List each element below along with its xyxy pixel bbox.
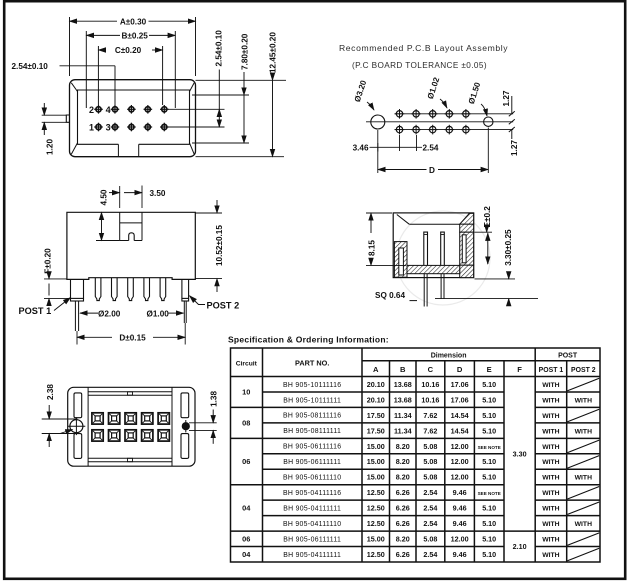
svg-text:F: F — [517, 365, 522, 374]
svg-text:SQ 0.64: SQ 0.64 — [375, 291, 405, 300]
svg-text:12.00: 12.00 — [451, 442, 469, 451]
svg-text:15.00: 15.00 — [367, 442, 385, 451]
svg-text:2.10: 2.10 — [513, 542, 527, 551]
svg-text:5.10: 5.10 — [482, 519, 496, 528]
svg-text:(P.C BOARD TOLERANCE ±0.05): (P.C BOARD TOLERANCE ±0.05) — [352, 61, 487, 70]
svg-text:E: E — [487, 365, 492, 374]
svg-text:D: D — [457, 365, 463, 374]
svg-text:17.50: 17.50 — [367, 411, 385, 420]
svg-text:BH 905-06111111: BH 905-06111111 — [283, 459, 341, 466]
svg-text:6.26: 6.26 — [396, 504, 410, 513]
svg-text:3.50: 3.50 — [150, 189, 166, 198]
svg-text:Recommended P.C.B Layout Assem: Recommended P.C.B Layout Assembly — [339, 43, 508, 53]
svg-text:2.54: 2.54 — [423, 504, 437, 513]
svg-text:10.16: 10.16 — [421, 380, 439, 389]
svg-text:A: A — [373, 365, 379, 374]
svg-text:WITH: WITH — [542, 506, 559, 513]
svg-text:13.68: 13.68 — [394, 380, 412, 389]
svg-text:06: 06 — [242, 535, 250, 544]
svg-text:Ø1.00: Ø1.00 — [147, 310, 170, 319]
svg-text:9.46: 9.46 — [453, 488, 467, 497]
svg-text:2: 2 — [89, 105, 94, 115]
svg-text:12.50: 12.50 — [367, 504, 385, 513]
svg-text:15.00: 15.00 — [367, 535, 385, 544]
svg-text:5.08: 5.08 — [423, 473, 437, 482]
svg-text:WITH: WITH — [575, 521, 592, 528]
svg-text:B±0.25: B±0.25 — [122, 32, 149, 41]
svg-text:6.26: 6.26 — [396, 488, 410, 497]
svg-text:17.06: 17.06 — [451, 395, 469, 404]
svg-text:WITH: WITH — [542, 397, 559, 404]
svg-text:1.38: 1.38 — [210, 391, 219, 407]
svg-text:12.50: 12.50 — [367, 488, 385, 497]
svg-text:SEE NOTE: SEE NOTE — [478, 491, 501, 496]
svg-text:5.10: 5.10 — [482, 504, 496, 513]
svg-text:4.50: 4.50 — [100, 189, 109, 205]
svg-text:WITH: WITH — [542, 521, 559, 528]
svg-text:5.10: 5.10 — [482, 535, 496, 544]
svg-text:WITH: WITH — [542, 459, 559, 466]
svg-text:4: 4 — [106, 105, 111, 115]
svg-text:1.27: 1.27 — [510, 140, 519, 156]
svg-text:2.38: 2.38 — [46, 384, 55, 400]
svg-text:BH 905-08111111: BH 905-08111111 — [283, 428, 341, 435]
svg-text:POST 2: POST 2 — [207, 301, 240, 311]
svg-text:10.52±0.15: 10.52±0.15 — [215, 225, 224, 266]
svg-text:12.00: 12.00 — [451, 535, 469, 544]
svg-text:7.80±0.20: 7.80±0.20 — [241, 33, 250, 70]
svg-text:WITH: WITH — [542, 490, 559, 497]
svg-text:WITH: WITH — [575, 397, 592, 404]
svg-text:6.26: 6.26 — [396, 519, 410, 528]
svg-text:BH 905-04111111: BH 905-04111111 — [283, 506, 341, 513]
svg-text:5.10: 5.10 — [482, 411, 496, 420]
svg-text:6.26: 6.26 — [396, 550, 410, 559]
svg-text:10: 10 — [242, 388, 250, 397]
svg-text:POST 1: POST 1 — [539, 367, 564, 374]
svg-text:5.10: 5.10 — [482, 426, 496, 435]
svg-text:3: 3 — [106, 123, 111, 133]
svg-text:1.27: 1.27 — [502, 90, 511, 106]
svg-text:B: B — [400, 365, 406, 374]
svg-text:5.10: 5.10 — [482, 380, 496, 389]
svg-text:WITH: WITH — [575, 428, 592, 435]
svg-text:12.45±0.20: 12.45±0.20 — [269, 32, 278, 73]
svg-text:08: 08 — [242, 419, 250, 428]
svg-text:5.08: 5.08 — [423, 457, 437, 466]
svg-text:D±0.15: D±0.15 — [119, 334, 146, 343]
svg-text:D: D — [429, 166, 435, 175]
svg-text:BH 905-10111116: BH 905-10111116 — [283, 382, 341, 389]
svg-text:BH 905-04111116: BH 905-04111116 — [283, 490, 341, 497]
svg-text:WITH: WITH — [542, 413, 559, 420]
svg-text:2.54: 2.54 — [423, 519, 437, 528]
svg-text:12.50: 12.50 — [367, 519, 385, 528]
svg-text:BH 905-10111111: BH 905-10111111 — [283, 397, 341, 404]
svg-text:9.46: 9.46 — [453, 519, 467, 528]
svg-text:F±0.20: F±0.20 — [44, 248, 53, 274]
svg-text:8.20: 8.20 — [396, 457, 410, 466]
svg-text:15.00: 15.00 — [367, 457, 385, 466]
svg-text:POST 1: POST 1 — [19, 306, 52, 316]
svg-text:WITH: WITH — [575, 475, 592, 482]
svg-text:WITH: WITH — [542, 382, 559, 389]
svg-text:11.34: 11.34 — [394, 426, 412, 435]
svg-text:9.46: 9.46 — [453, 550, 467, 559]
svg-text:04: 04 — [242, 550, 251, 559]
svg-text:8.20: 8.20 — [396, 473, 410, 482]
svg-text:5.10: 5.10 — [482, 395, 496, 404]
svg-text:14.54: 14.54 — [451, 426, 469, 435]
svg-text:SEE NOTE: SEE NOTE — [478, 445, 501, 450]
svg-text:12.00: 12.00 — [451, 473, 469, 482]
svg-text:15.00: 15.00 — [367, 473, 385, 482]
svg-text:WITH: WITH — [542, 552, 559, 559]
svg-text:Ø2.00: Ø2.00 — [98, 310, 121, 319]
svg-text:5.08: 5.08 — [423, 535, 437, 544]
svg-text:8.20: 8.20 — [396, 442, 410, 451]
svg-text:A±0.30: A±0.30 — [120, 17, 147, 26]
svg-text:BH 905-06111111: BH 905-06111111 — [283, 536, 341, 543]
svg-text:PART NO.: PART NO. — [295, 359, 329, 368]
svg-text:WITH: WITH — [542, 444, 559, 451]
svg-text:8.20: 8.20 — [396, 535, 410, 544]
svg-text:BH 905-06111116: BH 905-06111116 — [283, 444, 341, 451]
svg-text:WITH: WITH — [542, 475, 559, 482]
svg-text:12.00: 12.00 — [451, 457, 469, 466]
svg-text:C: C — [428, 365, 434, 374]
svg-text:5.10: 5.10 — [482, 457, 496, 466]
svg-text:POST 2: POST 2 — [571, 367, 596, 374]
svg-text:BH 905-04111111: BH 905-04111111 — [283, 552, 341, 559]
svg-text:20.10: 20.10 — [367, 380, 385, 389]
svg-text:Dimension: Dimension — [431, 353, 467, 360]
svg-text:Specification & Ordering Infor: Specification & Ordering Information: — [228, 335, 389, 345]
svg-text:13.68: 13.68 — [394, 395, 412, 404]
svg-text:5.10: 5.10 — [482, 473, 496, 482]
svg-text:7.62: 7.62 — [423, 411, 437, 420]
svg-text:14.54: 14.54 — [451, 411, 469, 420]
svg-text:BH 905-04111110: BH 905-04111110 — [283, 521, 341, 528]
svg-text:12.50: 12.50 — [367, 550, 385, 559]
svg-text:E±0.2: E±0.2 — [483, 206, 492, 228]
svg-text:10.16: 10.16 — [421, 395, 439, 404]
svg-text:7.62: 7.62 — [423, 426, 437, 435]
svg-text:3.30±0.25: 3.30±0.25 — [504, 229, 513, 266]
svg-text:C±0.20: C±0.20 — [115, 46, 142, 55]
svg-text:9.46: 9.46 — [453, 504, 467, 513]
svg-text:1: 1 — [89, 123, 94, 133]
svg-text:WITH: WITH — [542, 537, 559, 544]
svg-text:8.15: 8.15 — [368, 240, 377, 256]
svg-text:2.54: 2.54 — [423, 144, 439, 153]
svg-text:20.10: 20.10 — [367, 395, 385, 404]
svg-text:2.54: 2.54 — [423, 550, 437, 559]
svg-text:2.54±0.10: 2.54±0.10 — [215, 30, 224, 67]
svg-text:BH 905-08111116: BH 905-08111116 — [283, 413, 341, 420]
svg-text:11.34: 11.34 — [394, 411, 412, 420]
svg-text:06: 06 — [242, 457, 250, 466]
svg-text:5.10: 5.10 — [482, 550, 496, 559]
svg-text:17.50: 17.50 — [367, 426, 385, 435]
svg-text:3.30: 3.30 — [513, 450, 527, 459]
svg-text:BH 905-06111110: BH 905-06111110 — [283, 475, 341, 482]
svg-text:5.08: 5.08 — [423, 442, 437, 451]
svg-text:3.46: 3.46 — [353, 144, 369, 153]
svg-text:1.20: 1.20 — [46, 139, 55, 155]
svg-text:2.54±0.10: 2.54±0.10 — [12, 62, 49, 71]
svg-text:Circuit: Circuit — [236, 361, 258, 368]
svg-text:17.06: 17.06 — [451, 380, 469, 389]
svg-text:04: 04 — [242, 504, 251, 513]
svg-text:POST: POST — [558, 353, 578, 360]
svg-text:WITH: WITH — [542, 428, 559, 435]
svg-text:2.54: 2.54 — [423, 488, 437, 497]
